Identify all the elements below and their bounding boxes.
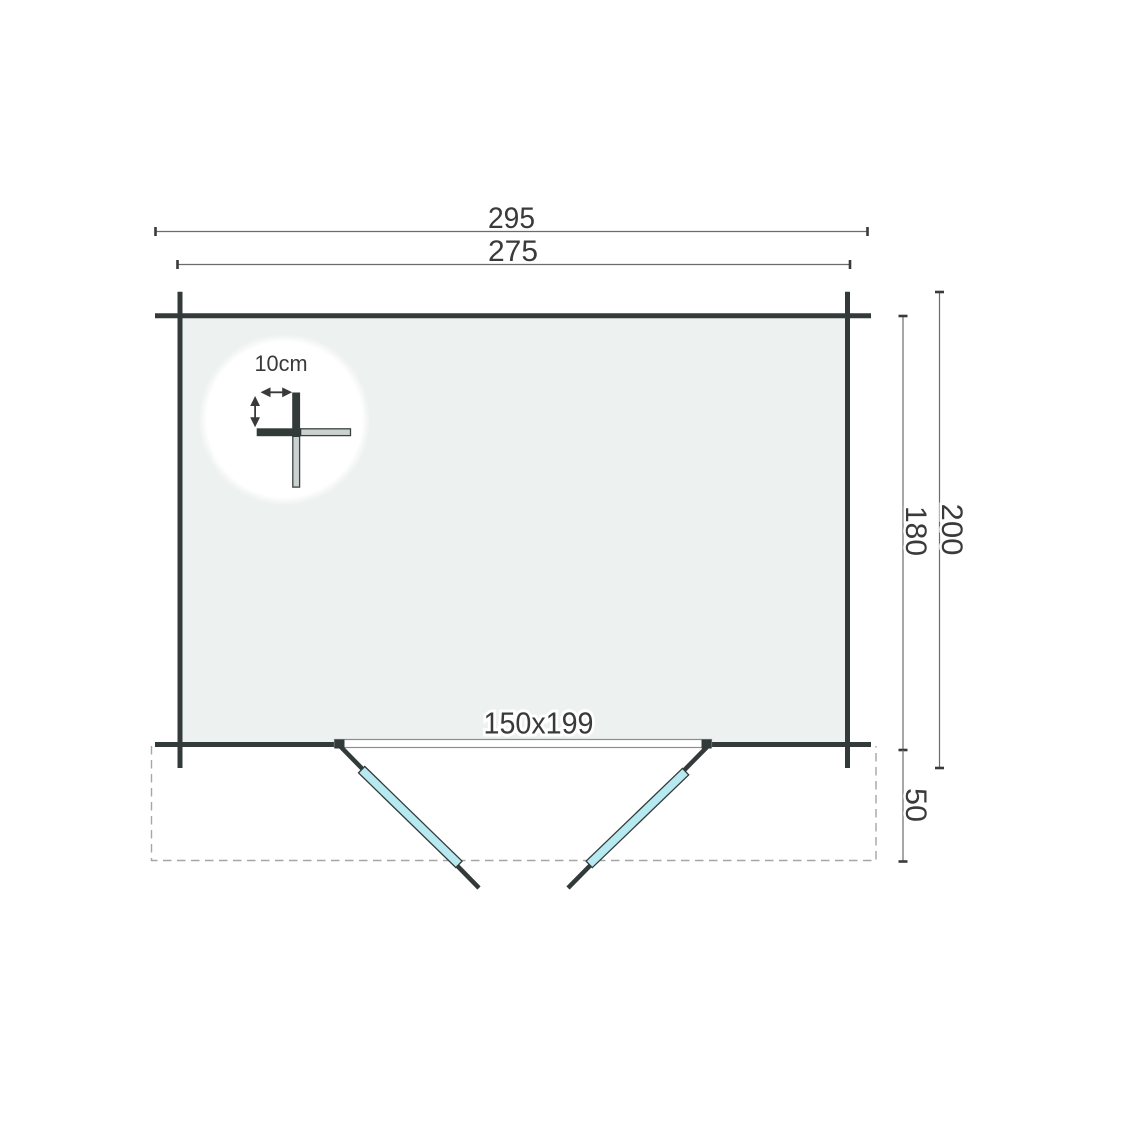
svg-text:180: 180	[899, 506, 932, 556]
svg-text:10cm: 10cm	[255, 351, 308, 376]
svg-text:50: 50	[899, 788, 932, 822]
svg-text:200: 200	[935, 504, 968, 556]
svg-text:150x199: 150x199	[484, 706, 594, 741]
svg-text:275: 275	[488, 235, 538, 268]
svg-text:295: 295	[488, 202, 535, 235]
